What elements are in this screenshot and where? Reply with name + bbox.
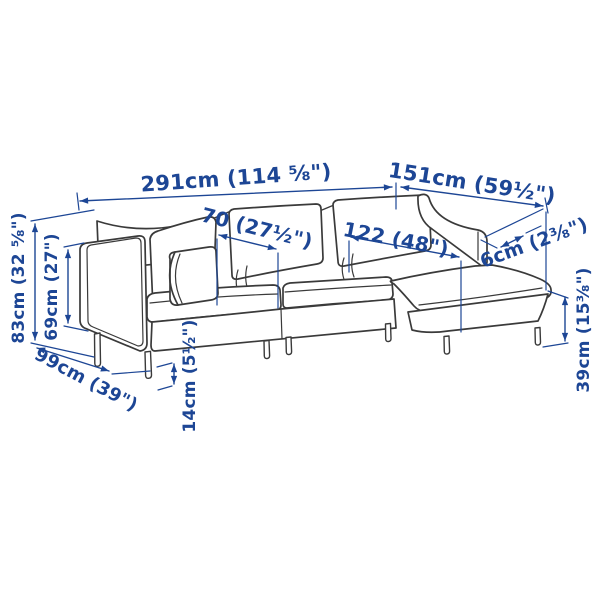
- dim-armrest-height-label: 69cm (27"): [42, 233, 62, 340]
- sofa-line-art: [80, 194, 551, 378]
- product-dimension-image: 291cm (114 ⅝") 151cm (59½") 70 (27½") 12…: [0, 0, 600, 600]
- dim-leg-height-label: 14cm (5½"): [180, 319, 200, 432]
- dim-leg-height-line: [157, 363, 174, 390]
- dim-back-height-label: 83cm (32 ⅝"): [9, 212, 29, 343]
- sofa-armrest-left: [80, 236, 147, 351]
- sofa-chaise: [390, 265, 551, 332]
- sofa-throw-pillow: [170, 247, 218, 305]
- dim-seat-height-label: 39cm (15⅜"): [574, 267, 594, 392]
- sofa-dimension-drawing: [0, 0, 600, 600]
